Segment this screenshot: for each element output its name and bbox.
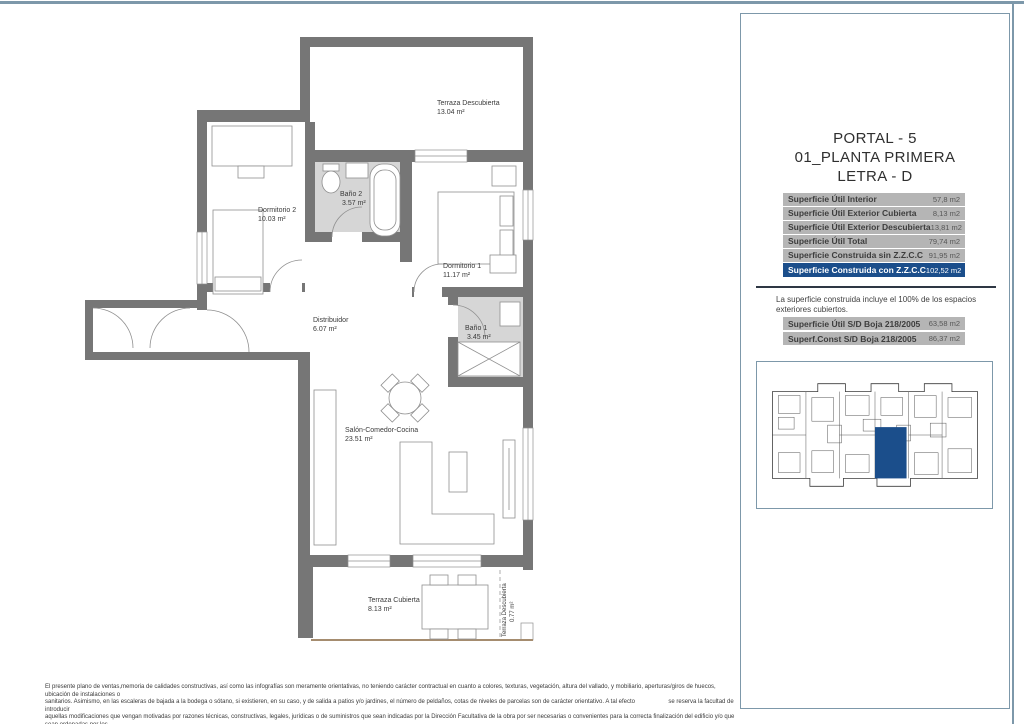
room-area-terraza-cubierta: 8.13 m² [368, 606, 392, 613]
surface-row-construida-con-zzcc: Superficie Construida con Z.Z.C.C 102,52… [783, 263, 965, 277]
room-label-salon: Salón-Comedor-Cocina [345, 427, 418, 434]
room-area-terraza-descubierta: 13.04 m² [437, 109, 465, 116]
construction-note: La superficie construida incluye el 100%… [776, 295, 981, 315]
building-units [772, 392, 971, 479]
room-label-distribuidor: Distribuidor [313, 317, 349, 324]
room-area-dormitorio-2: 10.03 m² [258, 216, 286, 223]
room-label-terraza-descubierta-small: Terraza Descubierta [502, 583, 508, 637]
door-arcs [93, 207, 485, 352]
page-top-border [0, 1, 1024, 4]
room-label-bano-1: Baño 1 [465, 325, 487, 332]
room-area-distribuidor: 6.07 m² [313, 326, 337, 333]
title-letra: LETRA - D [741, 167, 1009, 186]
boja-table: Superficie Útil S/D Boja 218/2005 63,58 … [783, 317, 965, 347]
boja-row-const: Superf.Const S/D Boja 218/2005 86,37 m2 [783, 332, 965, 345]
legal-disclaimer: El presente plano de ventas,memoria de c… [45, 684, 735, 724]
disclaimer-line-2: sanitarios. Asimismo, en las escaleras d… [45, 699, 735, 714]
room-label-terraza-cubierta: Terraza Cubierta [368, 597, 420, 604]
room-area-bano-2: 3.57 m² [342, 200, 366, 207]
floor-plan-drawing: Terraza Descubierta 13.04 m² Dormitorio … [30, 18, 550, 668]
key-plan-drawing [757, 362, 992, 508]
disclaimer-line-1: El presente plano de ventas,memoria de c… [45, 684, 735, 699]
room-label-terraza-descubierta: Terraza Descubierta [437, 100, 500, 107]
page-right-border [1012, 1, 1014, 724]
highlighted-unit [875, 427, 907, 478]
plan-sheet: Terraza Descubierta 13.04 m² Dormitorio … [0, 0, 1024, 724]
info-panel: PORTAL - 5 01_PLANTA PRIMERA LETRA - D S… [740, 13, 1010, 709]
boja-row-util: Superficie Útil S/D Boja 218/2005 63,58 … [783, 317, 965, 330]
surface-row-util-total: Superficie Útil Total 79,74 m2 [783, 235, 965, 248]
floor-plan: Terraza Descubierta 13.04 m² Dormitorio … [30, 18, 550, 668]
room-label-dormitorio-2: Dormitorio 2 [258, 207, 296, 214]
surface-row-util-ext-descubierta: Superficie Útil Exterior Descubierta 13,… [783, 221, 965, 234]
separator-line [756, 286, 996, 288]
room-label-bano-2: Baño 2 [340, 191, 362, 198]
title-portal: PORTAL - 5 [741, 129, 1009, 148]
room-area-dormitorio-1: 11.17 m² [443, 272, 471, 279]
door-gaps [270, 232, 458, 337]
room-area-terraza-descubierta-small: 0.77 m² [510, 602, 516, 622]
room-label-dormitorio-1: Dormitorio 1 [443, 263, 481, 270]
surface-table: Superficie Útil Interior 57,8 m2 Superfi… [783, 193, 965, 279]
surface-row-construida-sin-zzcc: Superficie Construida sin Z.Z.C.C 91,95 … [783, 249, 965, 262]
room-area-bano-1: 3.45 m² [467, 334, 491, 341]
title-block: PORTAL - 5 01_PLANTA PRIMERA LETRA - D [741, 129, 1009, 186]
disclaimer-line-3: aquellas modificaciones que vengan motiv… [45, 714, 735, 724]
key-plan [756, 361, 993, 509]
surface-row-util-interior: Superficie Útil Interior 57,8 m2 [783, 193, 965, 206]
title-planta: 01_PLANTA PRIMERA [741, 148, 1009, 167]
surface-row-util-ext-cubierta: Superficie Útil Exterior Cubierta 8,13 m… [783, 207, 965, 220]
room-area-salon: 23.51 m² [345, 436, 373, 443]
